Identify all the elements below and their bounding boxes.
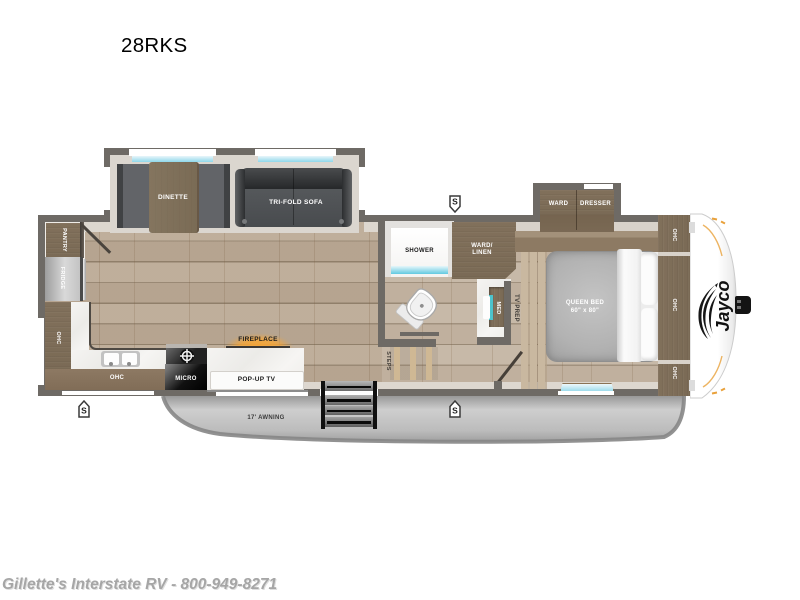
svg-text:S: S [452,197,458,207]
svg-text:S: S [452,406,458,416]
svg-text:S: S [81,406,87,416]
